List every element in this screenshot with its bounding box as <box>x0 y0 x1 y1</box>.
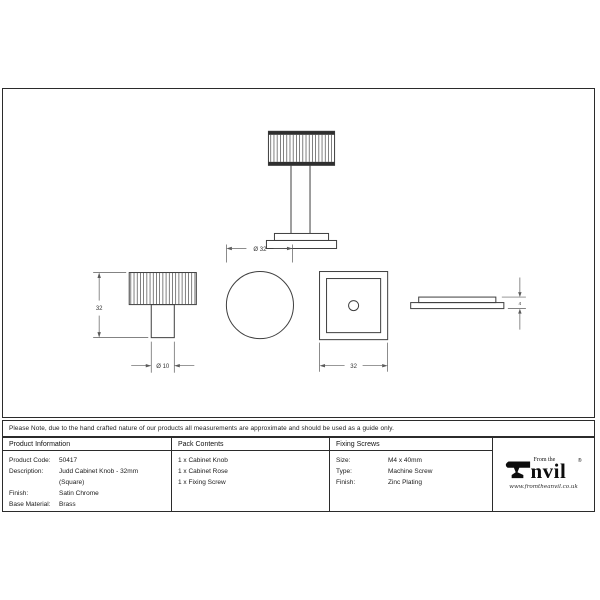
dimension-label: Ø 32 <box>253 247 267 253</box>
table-row: Description: Judd Cabinet Knob - 32mm <box>9 466 165 477</box>
pack-contents-item: 1 x Cabinet Knob <box>178 455 323 466</box>
row-label: Finish: <box>9 488 59 499</box>
dimension-rose-thickness: 4 <box>502 278 526 330</box>
dimension-label: 4 <box>519 301 522 307</box>
fixing-screws-body: Size: M4 x 40mm Type: Machine Screw Fini… <box>330 451 492 488</box>
pack-contents-header: Pack Contents <box>172 438 329 451</box>
row-value: 50417 <box>59 455 165 466</box>
row-label: Type: <box>336 466 388 477</box>
table-row: Finish: Satin Chrome <box>9 488 165 499</box>
row-value: Judd Cabinet Knob - 32mm <box>59 466 165 477</box>
logo-website-url: www.fromtheanvil.co.uk <box>504 484 584 490</box>
table-row: (Square) <box>9 477 165 488</box>
dimension-label: 32 <box>96 306 103 312</box>
product-information-body: Product Code: 50417 Description: Judd Ca… <box>3 451 171 510</box>
measurement-note-text: Please Note, due to the hand crafted nat… <box>9 425 394 432</box>
knob-side-view <box>129 273 196 338</box>
row-value: (Square) <box>59 477 165 488</box>
knob-fluting <box>271 135 332 162</box>
row-label <box>9 477 59 488</box>
dimension-stem-diameter: Ø 10 <box>131 342 194 373</box>
table-row: Type: Machine Screw <box>336 466 486 477</box>
technical-drawing-frame: 32 Ø 10 Ø 32 <box>2 88 595 418</box>
table-row: Base Material: Brass <box>9 499 165 510</box>
fixing-screws-header: Fixing Screws <box>330 438 492 451</box>
row-label: Size: <box>336 455 388 466</box>
row-value: M4 x 40mm <box>388 455 486 466</box>
table-row: Product Code: 50417 <box>9 455 165 466</box>
rose-side-view <box>411 297 504 309</box>
pack-contents-body: 1 x Cabinet Knob 1 x Cabinet Rose 1 x Fi… <box>172 451 329 488</box>
knob-front-view <box>226 272 293 339</box>
fixing-screws-section: Fixing Screws Size: M4 x 40mm Type: Mach… <box>330 438 493 511</box>
row-value: Machine Screw <box>388 466 486 477</box>
row-label: Finish: <box>336 477 388 488</box>
row-label: Product Code: <box>9 455 59 466</box>
row-value: Brass <box>59 499 165 510</box>
technical-drawing: 32 Ø 10 Ø 32 <box>3 89 594 417</box>
row-label: Base Material: <box>9 499 59 510</box>
measurement-note-bar: Please Note, due to the hand crafted nat… <box>2 420 595 437</box>
pack-contents-section: Pack Contents 1 x Cabinet Knob 1 x Cabin… <box>172 438 330 511</box>
rose-front-view <box>320 272 388 340</box>
dimension-label: 32 <box>350 364 357 370</box>
row-value: Zinc Plating <box>388 477 486 488</box>
pack-contents-item: 1 x Cabinet Rose <box>178 466 323 477</box>
registered-trademark-symbol: ® <box>578 458 582 464</box>
table-row: Size: M4 x 40mm <box>336 455 486 466</box>
from-the-anvil-logo: From the ® nvil www.fromtheanvil.co.uk <box>504 457 584 493</box>
dimension-knob-diameter: Ø 32 <box>226 244 292 262</box>
product-information-header: Product Information <box>3 438 171 451</box>
knob-fluting <box>131 273 195 304</box>
dimension-rose-width: 32 <box>320 343 388 372</box>
brand-logo-cell: From the ® nvil www.fromtheanvil.co.uk <box>493 438 594 511</box>
datasheet-page: { "note": "Please Note, due to the hand … <box>0 0 600 600</box>
row-label: Description: <box>9 466 59 477</box>
product-information-section: Product Information Product Code: 50417 … <box>3 438 172 511</box>
pack-contents-item: 1 x Fixing Screw <box>178 477 323 488</box>
logo-wordmark: nvil <box>504 459 567 482</box>
logo-wordmark-text: nvil <box>531 460 567 482</box>
knob-perspective-view <box>266 131 336 248</box>
product-spec-table: Product Information Product Code: 50417 … <box>2 437 595 512</box>
dimension-label: Ø 10 <box>156 364 170 370</box>
row-value: Satin Chrome <box>59 488 165 499</box>
anvil-icon <box>504 459 531 482</box>
table-row: Finish: Zinc Plating <box>336 477 486 488</box>
